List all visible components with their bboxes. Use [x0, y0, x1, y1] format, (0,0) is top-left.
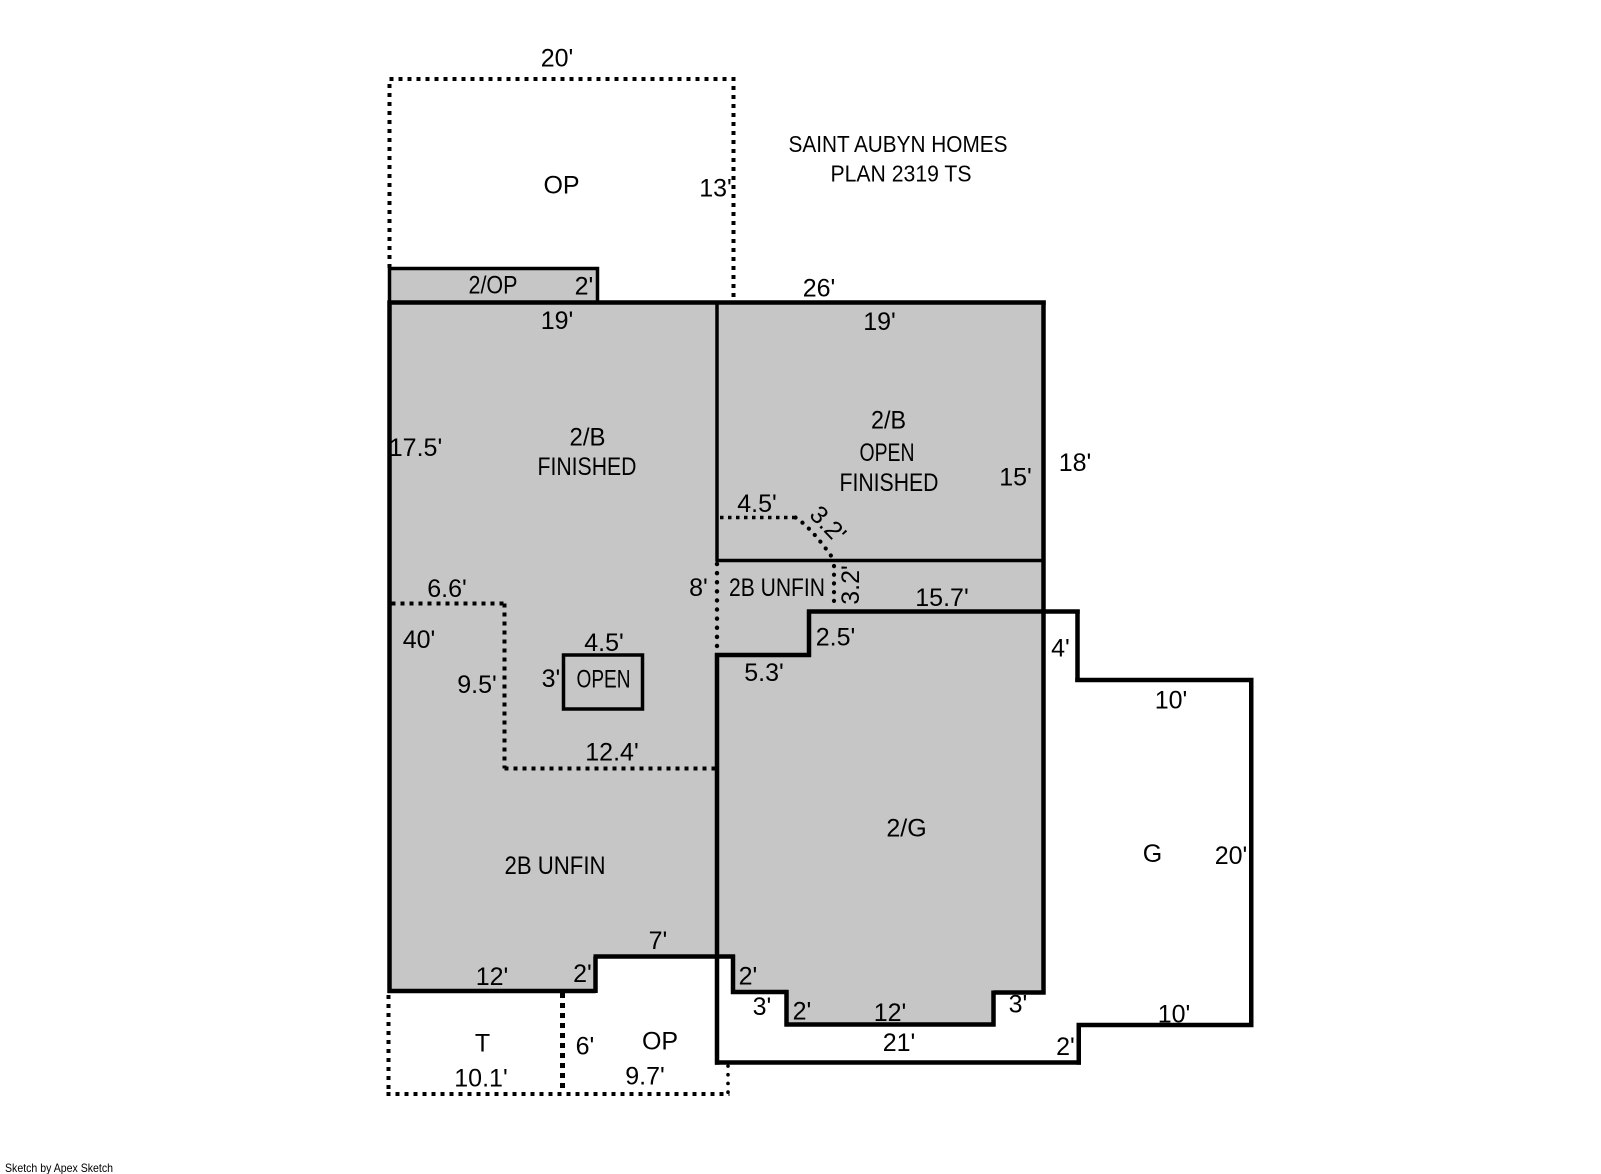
- svg-text:7': 7': [649, 927, 668, 955]
- svg-text:17.5': 17.5': [389, 434, 442, 462]
- svg-text:10': 10': [1158, 1001, 1191, 1029]
- svg-text:10': 10': [1155, 687, 1188, 715]
- svg-text:4.5': 4.5': [737, 490, 777, 518]
- svg-text:12.4': 12.4': [585, 739, 638, 767]
- svg-text:8': 8': [689, 574, 708, 602]
- svg-text:2': 2': [1056, 1033, 1075, 1061]
- svg-text:19': 19': [541, 307, 574, 335]
- svg-text:OP: OP: [543, 172, 579, 200]
- svg-text:FINISHED: FINISHED: [538, 453, 637, 481]
- svg-text:13': 13': [699, 175, 732, 203]
- svg-text:2.5': 2.5': [816, 624, 856, 652]
- svg-text:OPEN: OPEN: [860, 439, 915, 467]
- svg-text:G: G: [1143, 840, 1162, 868]
- svg-text:T: T: [475, 1030, 490, 1058]
- svg-text:2B UNFIN: 2B UNFIN: [505, 852, 606, 880]
- svg-text:20': 20': [1215, 842, 1248, 870]
- svg-text:20': 20': [541, 45, 574, 73]
- svg-text:2/G: 2/G: [886, 815, 926, 843]
- svg-text:2/B: 2/B: [871, 407, 906, 435]
- svg-text:18': 18': [1059, 449, 1092, 477]
- svg-text:2B UNFIN: 2B UNFIN: [729, 574, 825, 602]
- svg-text:2': 2': [739, 963, 758, 991]
- svg-text:2': 2': [793, 998, 812, 1026]
- svg-text:Sketch by Apex Sketch: Sketch by Apex Sketch: [5, 1161, 113, 1174]
- svg-text:4': 4': [1051, 635, 1070, 663]
- svg-text:15': 15': [999, 464, 1032, 492]
- svg-text:2': 2': [573, 960, 592, 988]
- svg-text:3': 3': [542, 665, 561, 693]
- svg-text:3': 3': [1009, 991, 1028, 1019]
- svg-text:2/B: 2/B: [570, 424, 606, 452]
- svg-text:15.7': 15.7': [915, 584, 968, 612]
- svg-text:2/OP: 2/OP: [469, 272, 518, 300]
- svg-text:6.6': 6.6': [427, 575, 467, 603]
- svg-text:21': 21': [883, 1029, 916, 1057]
- svg-text:SAINT AUBYN HOMES: SAINT AUBYN HOMES: [789, 131, 1008, 157]
- svg-text:12': 12': [874, 999, 907, 1027]
- svg-text:9.5': 9.5': [457, 671, 497, 699]
- svg-text:10.1': 10.1': [454, 1065, 507, 1093]
- svg-text:FINISHED: FINISHED: [840, 469, 939, 497]
- svg-text:OP: OP: [642, 1028, 678, 1056]
- svg-text:40': 40': [403, 626, 436, 654]
- svg-text:5.3': 5.3': [744, 659, 784, 687]
- svg-text:9.7': 9.7': [625, 1063, 665, 1091]
- svg-text:OPEN: OPEN: [577, 666, 631, 694]
- svg-text:3.2': 3.2': [837, 565, 865, 605]
- svg-text:4.5': 4.5': [584, 629, 624, 657]
- svg-text:26': 26': [803, 275, 836, 303]
- svg-text:6': 6': [576, 1033, 595, 1061]
- svg-text:19': 19': [863, 308, 896, 336]
- svg-text:12': 12': [476, 963, 509, 991]
- svg-text:3': 3': [753, 993, 772, 1021]
- svg-text:PLAN 2319 TS: PLAN 2319 TS: [831, 161, 972, 187]
- svg-text:2': 2': [575, 273, 594, 301]
